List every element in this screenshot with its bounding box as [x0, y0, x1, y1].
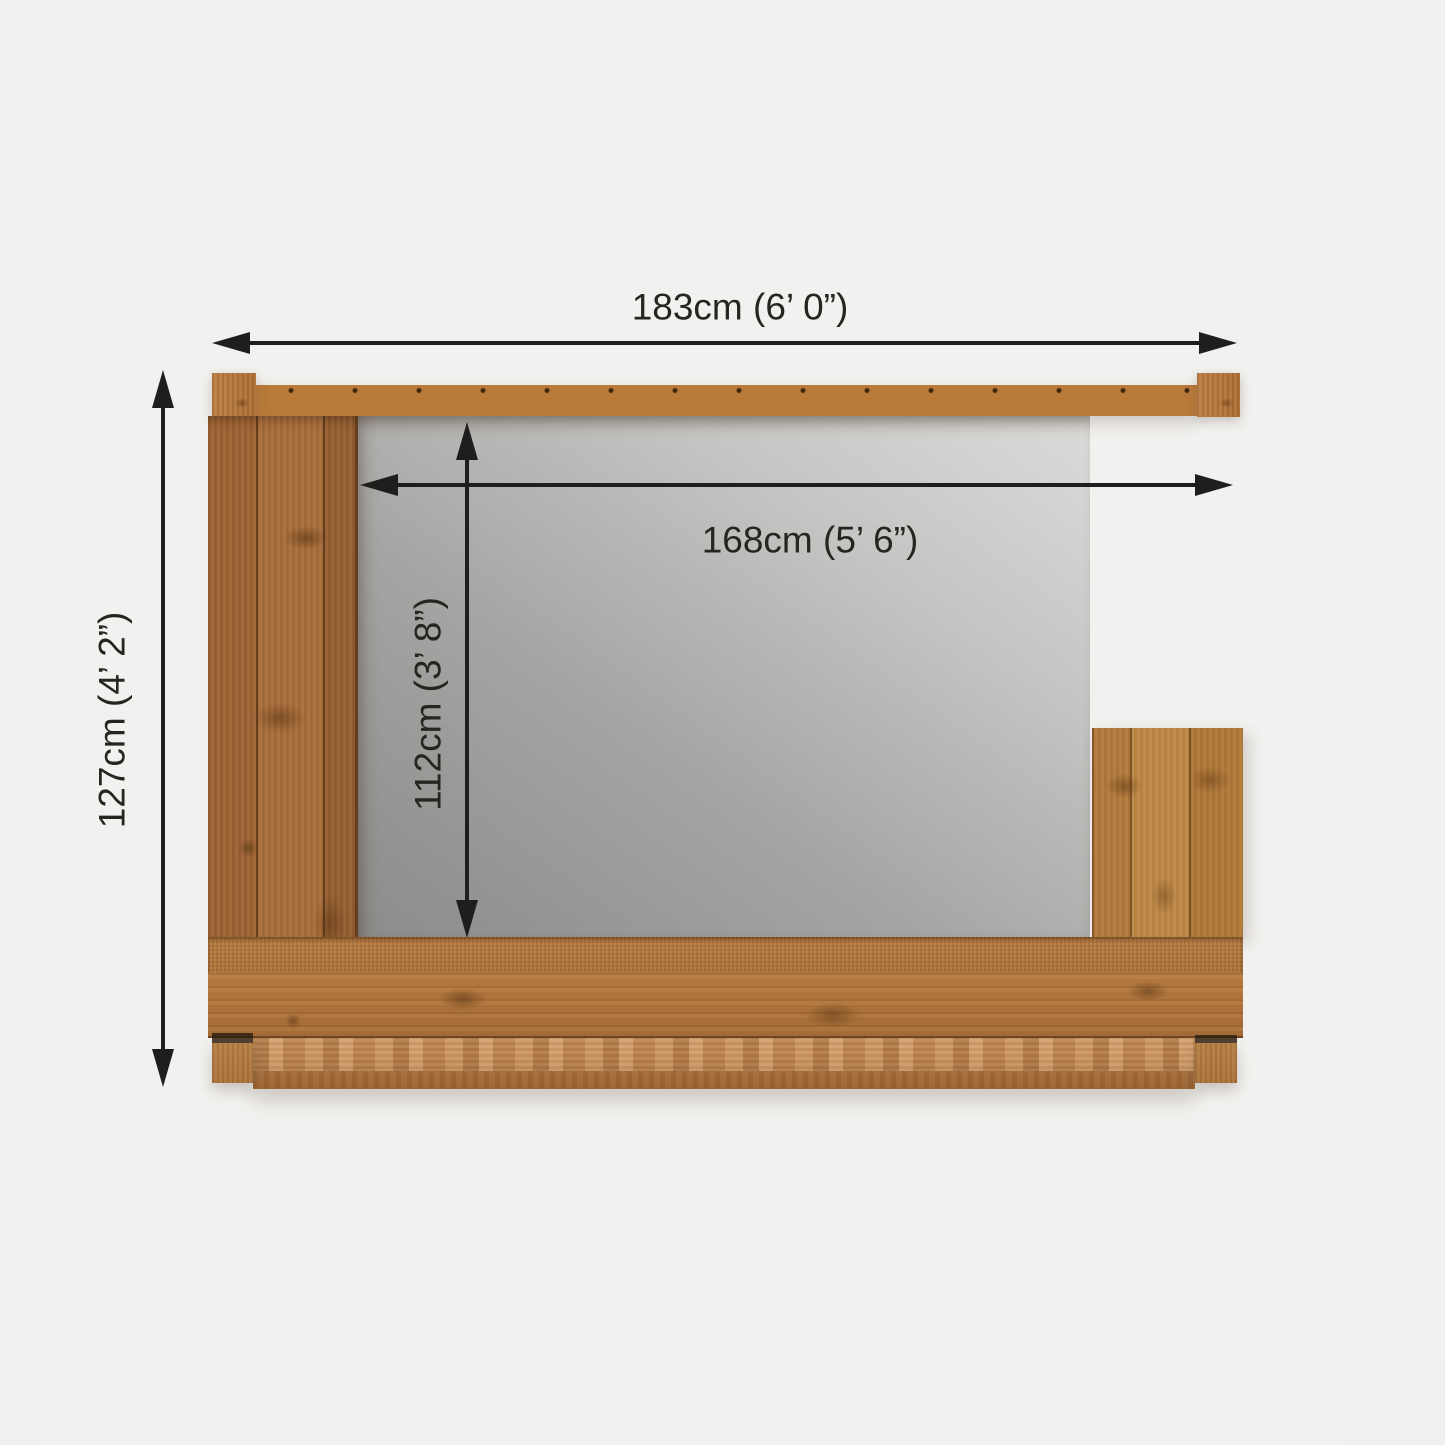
outer-width-arrow	[212, 332, 1237, 354]
inner-width-arrow	[360, 474, 1233, 496]
product-dimension-diagram: 183cm (6’ 0”) 168cm (5’ 6”) 127cm (4’ 2”…	[0, 0, 1445, 1445]
outer-width-label: 183cm (6’ 0”)	[632, 289, 849, 326]
inner-depth-label: 112cm (3’ 8”)	[410, 597, 447, 811]
outer-depth-label: 127cm (4’ 2”)	[94, 612, 131, 829]
dimension-arrows-layer	[0, 0, 1445, 1445]
inner-width-label: 168cm (5’ 6”)	[702, 522, 919, 559]
outer-depth-arrow	[152, 370, 174, 1087]
inner-depth-arrow	[456, 422, 478, 938]
